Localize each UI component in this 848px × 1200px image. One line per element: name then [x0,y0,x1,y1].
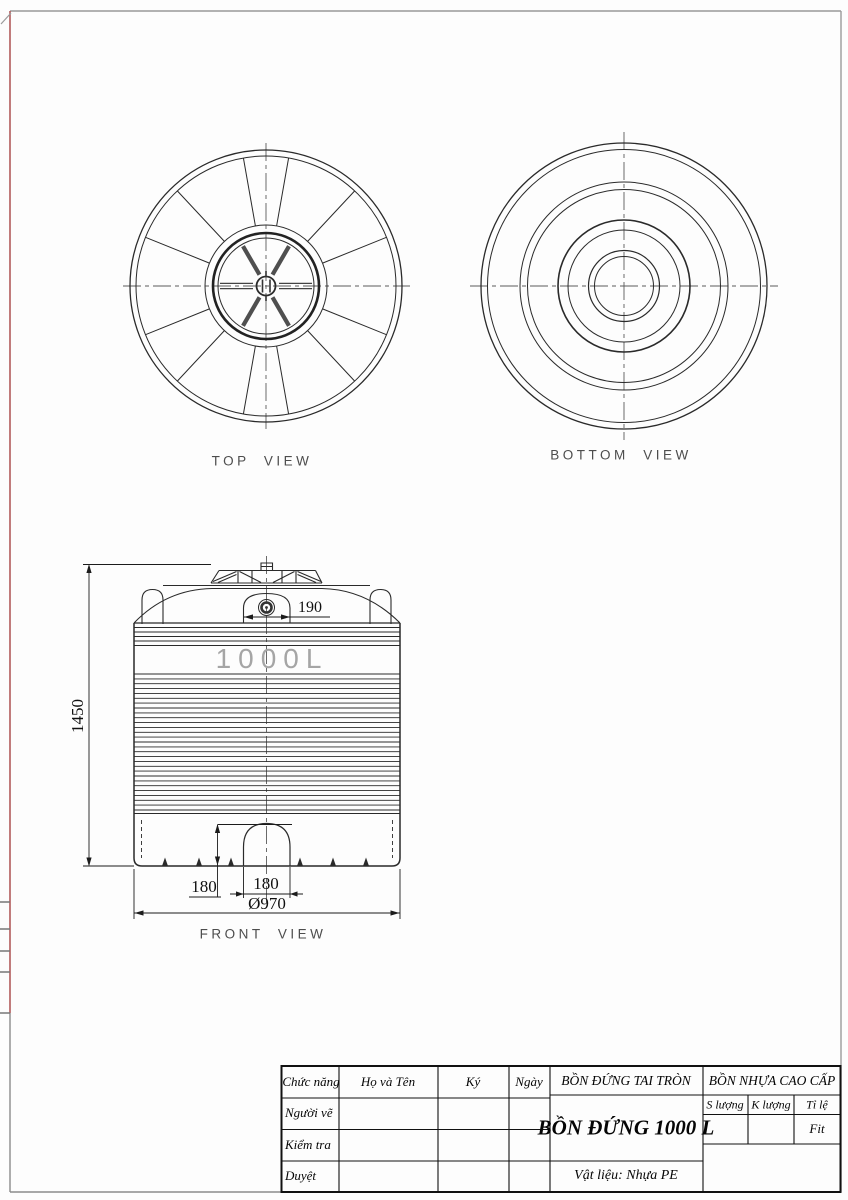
top-view-centerlines [123,143,410,429]
titleblock-brand: BỒN NHỰA CAO CẤP [709,1073,836,1089]
titleblock-scale-label: Tỉ lệ [806,1098,828,1113]
titleblock-quantity-label: S lượng [706,1098,743,1113]
titleblock-product-title: BỒN ĐỨNG 1000 L [538,1116,715,1141]
titleblock-row-checker: Kiểm tra [285,1137,331,1153]
front-view [134,556,400,903]
titleblock-header-role: Chức năng [282,1074,339,1090]
dimension-base-recess-height: 180 [191,877,217,897]
dim-1450-lines [83,565,211,867]
drawing-sheet: 1000L TOP VIEW BOTTOM VIEW FRONT VIEW 14… [0,0,848,1200]
titleblock-header-date: Ngày [515,1074,542,1090]
frame-fold-ticks [0,902,10,1013]
titleblock-header-sign: Ký [466,1074,480,1090]
top-view-label: TOP VIEW [212,454,313,469]
front-view-label: FRONT VIEW [200,927,327,942]
titleblock-row-approver: Duyệt [285,1168,316,1184]
top-view [123,143,410,429]
rib-band-main [134,674,400,810]
base-tick-arrows [162,858,369,867]
bottom-view-label: BOTTOM VIEW [550,448,692,463]
bottom-view [470,132,778,440]
skirt-hidden-lines [142,820,393,858]
titleblock-weight-label: K lượng [751,1098,790,1113]
titleblock-material: Vật liệu: Nhựa PE [574,1168,678,1184]
titleblock-header-name: Họ và Tên [361,1074,415,1090]
bottom-view-centerlines [470,132,778,440]
titleblock-row-drawer: Người vẽ [285,1105,333,1121]
titleblock-scale-value: Fit [809,1121,824,1137]
sheet-frame [0,11,841,1192]
dimension-base-recess-width: 180 [253,874,279,894]
titleblock-product-type: BỒN ĐỨNG TAI TRÒN [561,1073,691,1089]
dimension-lid-opening: 190 [298,599,322,617]
dimension-overall-height: 1450 [68,699,88,733]
tank-capacity-text: 1000L [216,643,329,675]
drawing-canvas [0,0,848,1200]
dimension-base-diameter: Ø970 [248,894,286,914]
